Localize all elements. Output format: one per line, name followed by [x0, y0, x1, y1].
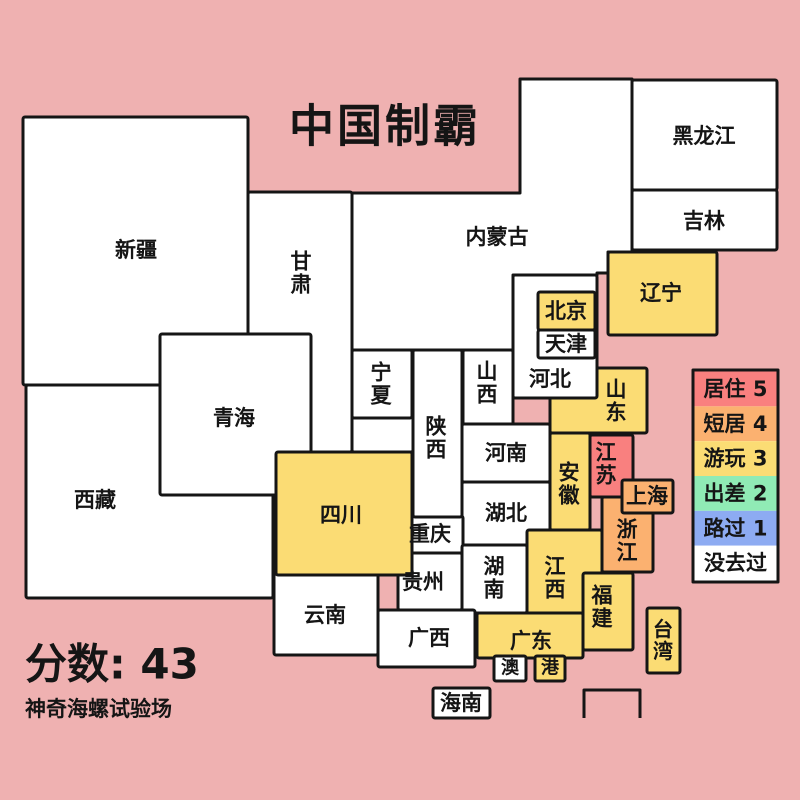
legend-label-level-1: 路过 1 [704, 516, 768, 540]
province-label-fujian: 福建 [591, 584, 613, 631]
province-label-henan: 河南 [485, 441, 527, 465]
province-label-jilin: 吉林 [683, 209, 725, 233]
province-label-heilongjiang: 黑龙江 [673, 124, 736, 148]
province-label-shandong: 山东 [606, 378, 627, 425]
china-map-canvas: 中国制霸新疆西藏甘肃青海内蒙古四川陕西宁夏山西山东河北北京天津河南安徽江苏湖北重… [0, 0, 800, 800]
legend-label-level-4: 短居 4 [704, 412, 768, 436]
province-label-hongkong: 港 [541, 658, 560, 679]
province-label-gansu: 甘肃 [291, 250, 312, 297]
legend-label-level-0: 没去过 [704, 551, 767, 575]
legend-label-level-2: 出差 2 [704, 481, 768, 505]
province-label-zhejiang: 浙江 [617, 518, 638, 565]
province-label-hunan: 湖南 [484, 555, 505, 602]
province-label-sichuan: 四川 [320, 503, 362, 527]
province-label-yunnan: 云南 [304, 603, 346, 627]
province-label-tianjin: 天津 [545, 332, 587, 356]
province-label-ningxia: 宁夏 [371, 361, 393, 408]
province-label-taiwan: 台湾 [653, 617, 673, 663]
province-label-jiangsu: 江苏 [596, 441, 617, 488]
legend-label-level-5: 居住 5 [704, 377, 768, 401]
province-label-inner-mongolia: 内蒙古 [466, 225, 529, 249]
province-label-guangxi: 广西 [408, 626, 450, 650]
legend: 居住 5短居 4游玩 3出差 2路过 1没去过 [693, 370, 778, 582]
china-conquest-app: 中国制霸新疆西藏甘肃青海内蒙古四川陕西宁夏山西山东河北北京天津河南安徽江苏湖北重… [0, 0, 800, 800]
province-label-xinjiang: 新疆 [115, 238, 157, 262]
province-label-jiangxi: 江西 [545, 555, 566, 602]
province-label-shanxi: 山西 [477, 360, 498, 407]
footer-credit: 神奇海螺试验场 [25, 697, 172, 721]
province-label-hebei: 河北 [529, 367, 571, 391]
province-label-anhui: 安徽 [558, 461, 581, 508]
province-label-guizhou: 贵州 [402, 570, 444, 594]
legend-label-level-3: 游玩 3 [704, 447, 768, 471]
province-label-guangdong: 广东 [510, 629, 552, 653]
score-text: 分数: 43 [25, 640, 199, 689]
province-label-hainan: 海南 [440, 691, 482, 715]
province-label-qinghai: 青海 [213, 406, 255, 430]
province-label-hubei: 湖北 [485, 501, 527, 525]
province-label-tibet: 西藏 [74, 488, 116, 512]
province-label-shanghai: 上海 [626, 484, 668, 508]
province-label-shaanxi: 陕西 [426, 415, 447, 462]
page-title: 中国制霸 [289, 100, 481, 153]
province-label-beijing: 北京 [545, 299, 587, 323]
province-label-chongqing: 重庆 [409, 522, 451, 546]
province-label-liaoning: 辽宁 [640, 281, 682, 305]
province-label-macau: 澳 [501, 657, 520, 679]
